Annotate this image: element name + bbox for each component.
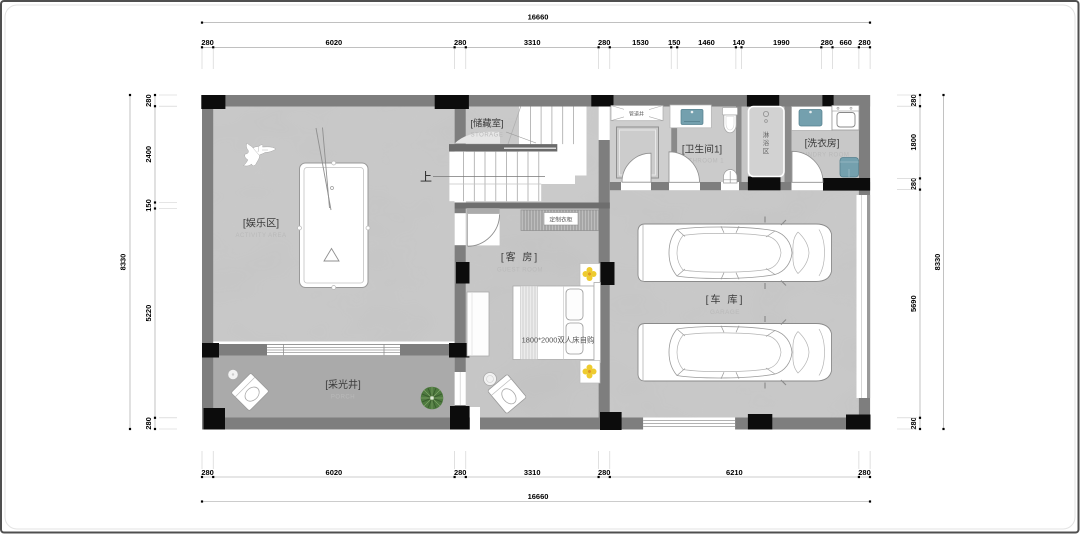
svg-text:1530: 1530 xyxy=(632,38,649,47)
svg-text:1800: 1800 xyxy=(909,134,918,151)
svg-text:3310: 3310 xyxy=(524,38,541,47)
svg-text:280: 280 xyxy=(858,38,871,47)
svg-text:GARAGE: GARAGE xyxy=(710,309,740,316)
svg-text:5220: 5220 xyxy=(144,305,153,322)
svg-text:150: 150 xyxy=(144,199,153,212)
svg-text:STORAGE: STORAGE xyxy=(471,133,504,139)
svg-text:660: 660 xyxy=(839,38,852,47)
svg-text:[采光井]: [采光井] xyxy=(325,378,361,391)
svg-text:PORCH: PORCH xyxy=(331,395,355,401)
svg-text:280: 280 xyxy=(858,468,871,477)
svg-text:280: 280 xyxy=(201,38,214,47)
svg-text:淋: 淋 xyxy=(763,130,770,139)
svg-text:[卫生间1]: [卫生间1] xyxy=(682,143,723,156)
svg-text:5690: 5690 xyxy=(909,295,918,312)
svg-text:8330: 8330 xyxy=(933,254,942,271)
svg-text:定制衣柜: 定制衣柜 xyxy=(549,216,572,224)
svg-text:[储藏室]: [储藏室] xyxy=(470,118,503,129)
svg-text:280: 280 xyxy=(821,38,834,47)
svg-text:140: 140 xyxy=(732,38,745,47)
svg-text:1800*2000双人床自购: 1800*2000双人床自购 xyxy=(522,336,595,345)
svg-text:280: 280 xyxy=(454,468,467,477)
svg-text:280: 280 xyxy=(454,38,467,47)
svg-text:280: 280 xyxy=(144,94,153,107)
svg-text:ACTIVITY AREA: ACTIVITY AREA xyxy=(235,233,286,239)
svg-text:3310: 3310 xyxy=(524,468,541,477)
svg-text:150: 150 xyxy=(668,38,681,47)
svg-text:16660: 16660 xyxy=(528,12,549,21)
svg-text:[客 房]: [客 房] xyxy=(501,251,539,264)
svg-text:6020: 6020 xyxy=(326,468,343,477)
svg-text:6210: 6210 xyxy=(726,468,743,477)
svg-text:280: 280 xyxy=(598,468,611,477)
svg-text:8330: 8330 xyxy=(119,254,128,271)
svg-text:上: 上 xyxy=(420,170,432,184)
svg-text:16660: 16660 xyxy=(528,492,549,501)
svg-text:1990: 1990 xyxy=(773,38,790,47)
svg-text:280: 280 xyxy=(909,178,918,191)
svg-text:6020: 6020 xyxy=(326,38,343,47)
svg-text:管道井: 管道井 xyxy=(629,111,644,118)
svg-text:2400: 2400 xyxy=(144,146,153,163)
svg-text:GUEST ROOM: GUEST ROOM xyxy=(497,268,543,274)
svg-text:1460: 1460 xyxy=(698,38,715,47)
svg-text:280: 280 xyxy=(909,417,918,430)
svg-text:[车 库]: [车 库] xyxy=(706,293,745,306)
svg-text:280: 280 xyxy=(144,417,153,430)
svg-text:[洗衣房]: [洗衣房] xyxy=(805,137,840,150)
svg-text:浴: 浴 xyxy=(763,138,770,147)
svg-text:280: 280 xyxy=(909,94,918,107)
svg-text:[娱乐区]: [娱乐区] xyxy=(243,217,279,230)
svg-text:280: 280 xyxy=(598,38,611,47)
svg-text:280: 280 xyxy=(201,468,214,477)
svg-text:区: 区 xyxy=(763,147,770,155)
